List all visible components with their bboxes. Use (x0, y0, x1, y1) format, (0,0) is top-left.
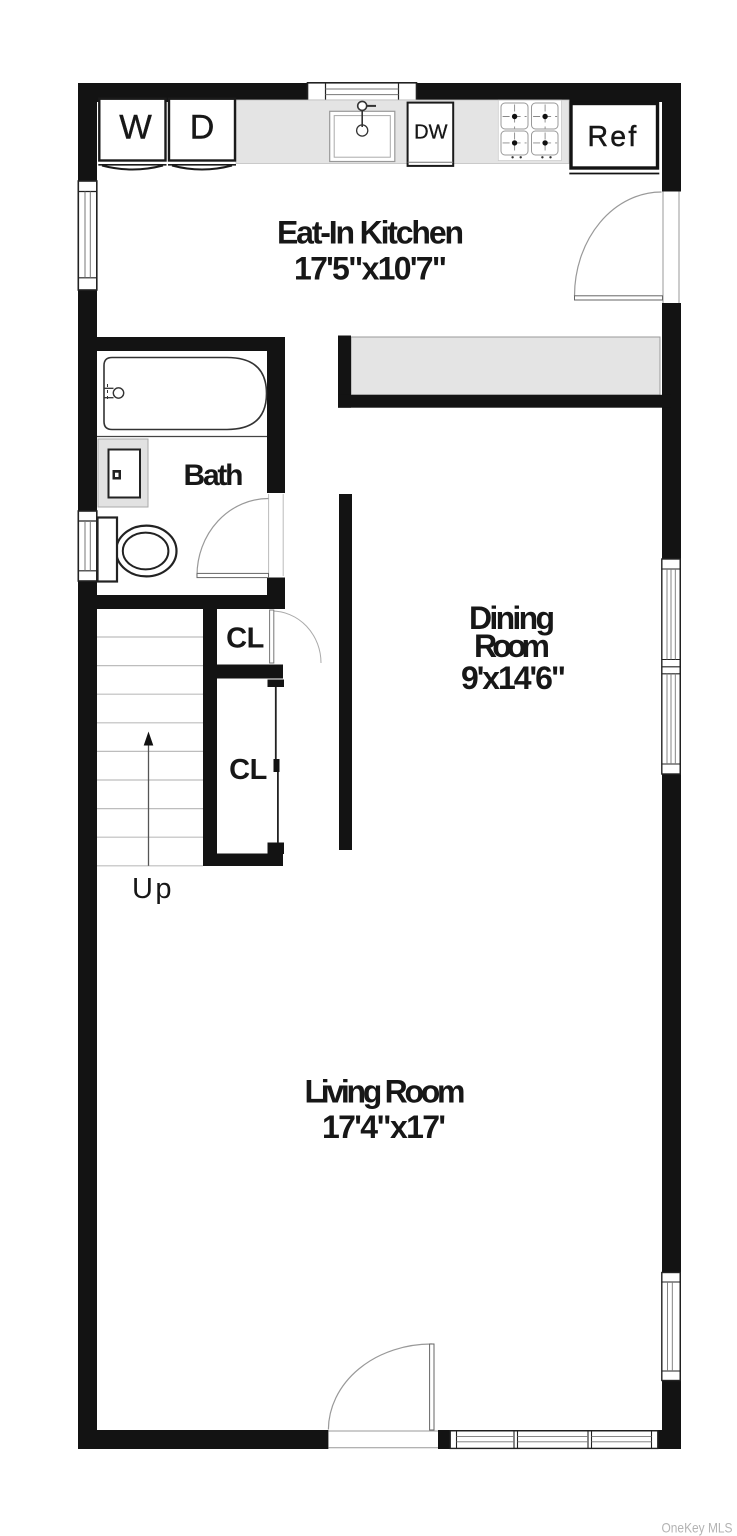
svg-text:Room: Room (474, 628, 550, 664)
svg-text:CL: CL (229, 754, 267, 786)
svg-text:9'x14'6": 9'x14'6" (461, 660, 566, 696)
svg-text:OneKey MLS: OneKey MLS (662, 1520, 733, 1536)
svg-text:DW: DW (414, 121, 447, 143)
svg-text:17'5"x10'7": 17'5"x10'7" (294, 251, 447, 287)
svg-text:Bath: Bath (184, 459, 244, 492)
svg-text:Ref: Ref (588, 121, 639, 153)
svg-text:W: W (119, 108, 152, 146)
svg-text:Up: Up (132, 873, 174, 905)
svg-text:17'4"x17': 17'4"x17' (322, 1109, 446, 1145)
svg-text:D: D (190, 108, 215, 146)
svg-text:CL: CL (226, 623, 264, 655)
svg-text:Eat-In Kitchen: Eat-In Kitchen (277, 215, 464, 251)
svg-text:Living Room: Living Room (305, 1074, 466, 1110)
